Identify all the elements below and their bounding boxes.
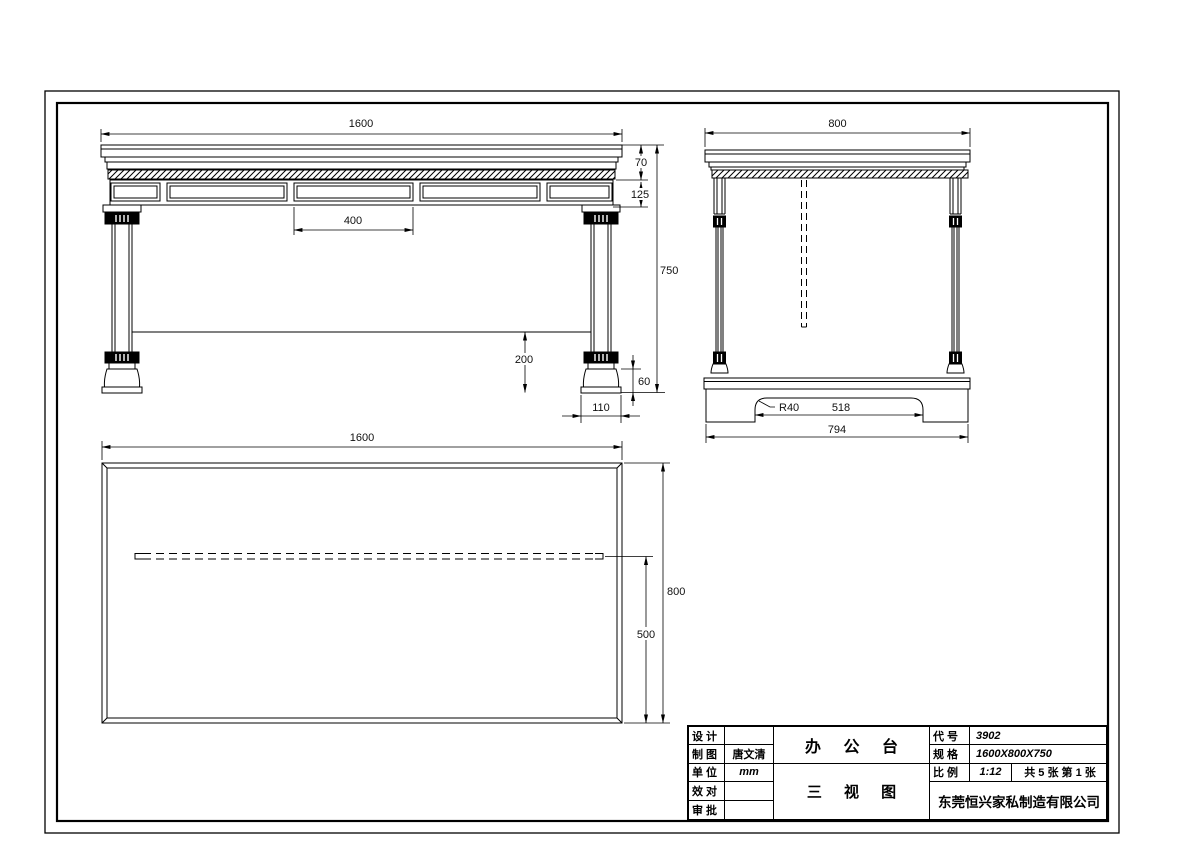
dim-side-cutout: 518	[832, 402, 850, 414]
dim-front-top-thickness: 70	[635, 157, 647, 169]
dim-side-radius: R40	[779, 402, 799, 414]
designer-value	[725, 727, 774, 745]
scale-value: 1:12	[970, 764, 1012, 782]
drafter-label: 制 图	[689, 745, 725, 763]
hidden-modesty-panel	[802, 180, 807, 327]
top-view-dimensions	[102, 441, 670, 723]
apron-panels	[111, 183, 612, 201]
dim-front-foot-height: 60	[638, 376, 650, 388]
sheet-info: 共 5 张 第 1 张	[1012, 764, 1108, 782]
r40-leader	[759, 401, 775, 407]
dim-front-width: 1600	[349, 118, 373, 130]
drawing-sheet: 1600 400 70 125 750 200 60 110	[0, 0, 1191, 842]
dim-front-apron: 125	[631, 189, 649, 201]
dim-front-height: 750	[660, 265, 678, 277]
approver-value	[725, 801, 774, 819]
unit-value: mm	[725, 764, 774, 782]
side-view	[704, 150, 970, 422]
spec-value: 1600X800X750	[970, 745, 1108, 763]
view-name: 三 视 图	[774, 764, 930, 819]
title-block: 设 计 办 公 台 代 号 3902 制 图 唐文清 规 格 1600X800X…	[687, 725, 1108, 821]
dim-front-clearance: 200	[515, 354, 533, 366]
front-right-leg	[581, 205, 621, 393]
top-view	[102, 463, 622, 723]
dim-side-depth: 800	[828, 118, 846, 130]
checker-value	[725, 782, 774, 800]
drafter-value: 唐文清	[725, 745, 774, 763]
dim-front-panel: 400	[344, 215, 362, 227]
top-hidden-panel	[135, 554, 603, 560]
code-label: 代 号	[930, 727, 970, 745]
corner-miters	[102, 463, 622, 723]
checker-label: 效 对	[689, 782, 725, 800]
front-left-leg	[102, 205, 142, 393]
unit-label: 单 位	[689, 764, 725, 782]
product-name: 办 公 台	[774, 727, 930, 764]
dim-top-width: 1600	[350, 432, 374, 444]
side-view-dim-texts: 800 R40 518 794	[779, 118, 850, 436]
code-value: 3902	[970, 727, 1108, 745]
dim-top-panel-offset: 500	[637, 629, 655, 641]
scale-label: 比 例	[930, 764, 970, 782]
dim-side-base-width: 794	[828, 424, 846, 436]
cad-canvas: 1600 400 70 125 750 200 60 110	[0, 0, 1191, 842]
side-right-leg	[947, 178, 964, 373]
front-view	[101, 145, 622, 393]
dim-top-depth: 800	[667, 586, 685, 598]
company-name: 东莞恒兴家私制造有限公司	[930, 782, 1108, 819]
dim-front-foot-width: 110	[592, 402, 610, 414]
approver-label: 审 批	[689, 801, 725, 819]
spec-label: 规 格	[930, 745, 970, 763]
designer-label: 设 计	[689, 727, 725, 745]
side-left-leg	[711, 178, 728, 373]
